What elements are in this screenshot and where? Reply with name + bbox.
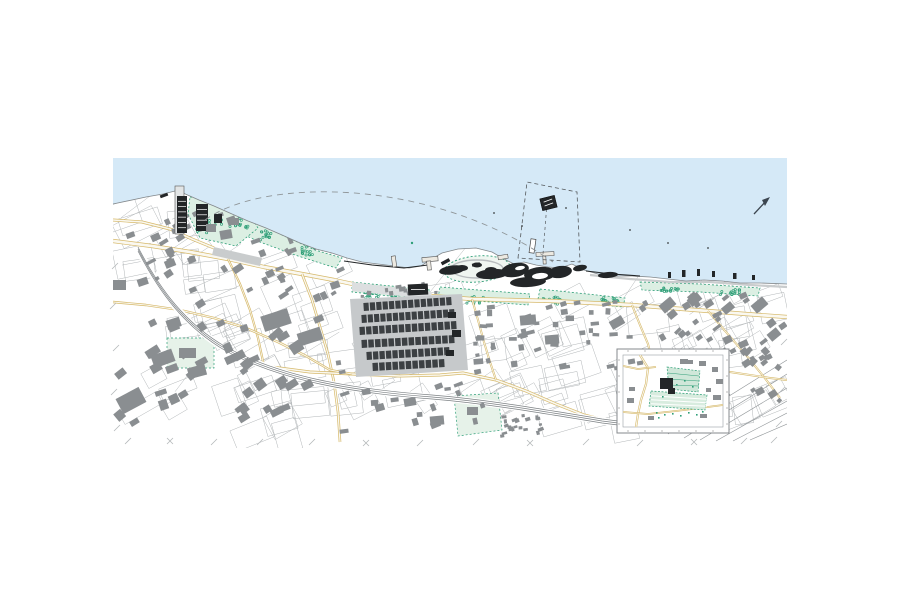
building (706, 336, 713, 342)
old-town-house (427, 298, 433, 306)
old-town-house (392, 350, 398, 358)
bathing-hut (697, 269, 700, 276)
old-town-house (399, 312, 405, 320)
frame-dot (695, 430, 696, 431)
building (592, 333, 599, 337)
building (521, 414, 525, 417)
old-town-house (405, 349, 411, 357)
building-large (609, 315, 626, 330)
inset-green-dot (688, 412, 690, 414)
old-town-house (392, 362, 398, 370)
edge-tick (771, 437, 777, 443)
bathing-hut (712, 271, 715, 277)
building (474, 369, 482, 375)
building (220, 265, 228, 273)
building (626, 335, 632, 339)
old-town-house (421, 299, 427, 307)
building (148, 318, 157, 327)
building-large (260, 308, 292, 332)
edge-tick (113, 345, 119, 351)
old-town-house (401, 300, 407, 308)
frame-dot (678, 430, 679, 431)
old-town-house (425, 323, 431, 331)
building (774, 364, 782, 372)
frame-dot (618, 375, 619, 376)
building (729, 348, 736, 354)
inset-building (699, 361, 706, 366)
building (125, 231, 135, 239)
old-town-house (389, 301, 395, 309)
edge-tick (125, 438, 131, 444)
building (545, 304, 553, 310)
old-town-house (437, 347, 443, 355)
building (336, 360, 342, 365)
old-town-house (424, 311, 430, 319)
town-plan-map (0, 0, 900, 600)
building-large (403, 397, 416, 407)
edge-tick (114, 425, 120, 431)
old-town-house (366, 352, 372, 360)
old-town-house (419, 360, 425, 368)
inset-building (648, 416, 654, 420)
building (509, 337, 517, 341)
building (336, 266, 345, 273)
port-building (206, 224, 216, 232)
frame-dot (661, 350, 662, 351)
building (114, 367, 127, 379)
building-large (113, 280, 126, 290)
old-town-house (379, 351, 385, 359)
buoy-dot (707, 247, 709, 249)
old-town-house (430, 310, 436, 318)
building (692, 318, 699, 325)
old-town-house (425, 348, 431, 356)
building (361, 295, 364, 298)
inset-green-dot (664, 414, 666, 416)
bathing-hut (682, 270, 686, 277)
building-large (545, 334, 560, 344)
old-town-house (443, 309, 449, 317)
edge-tick (741, 438, 747, 444)
old-town-house (386, 313, 392, 321)
building (487, 310, 492, 317)
old-town-house (375, 339, 381, 347)
building (609, 332, 618, 336)
old-town-house (380, 313, 386, 321)
inset-building (627, 398, 634, 403)
frame-dot (618, 407, 619, 408)
frame-dot (712, 430, 713, 431)
old-town-house (446, 297, 452, 305)
old-town-house (399, 361, 405, 369)
inset-building (712, 367, 718, 372)
old-town-house (411, 311, 417, 319)
building (163, 269, 173, 279)
building-large (297, 327, 324, 347)
building (519, 426, 523, 429)
old-town-house (412, 360, 418, 368)
port-building (230, 218, 239, 225)
frame-dot (661, 430, 662, 431)
building (164, 218, 171, 225)
inset-green-dot (676, 384, 678, 386)
inset-green-dot (696, 414, 698, 416)
old-town-house (418, 323, 424, 331)
building (767, 389, 778, 399)
frame-dot (726, 359, 727, 360)
old-town-house (382, 339, 388, 347)
frame-dot (644, 350, 645, 351)
inset-building (629, 387, 635, 391)
old-town-house (399, 324, 405, 332)
old-town-house (437, 310, 443, 318)
building (534, 347, 542, 353)
building (195, 298, 206, 309)
old-town-house (405, 324, 411, 332)
old-town-house (399, 350, 405, 358)
building (159, 238, 169, 246)
old-town-house (412, 349, 418, 357)
old-town-house (379, 362, 385, 370)
building (500, 434, 504, 438)
buoy-dot (565, 207, 567, 209)
building (178, 389, 189, 399)
frame-dot (726, 391, 727, 392)
old-town-house (408, 337, 414, 345)
building-large (520, 314, 537, 325)
buoy-dot (667, 242, 669, 244)
parcel (271, 417, 302, 454)
field-building (467, 407, 478, 415)
old-town-house (414, 299, 420, 307)
building (566, 316, 574, 322)
inset-green-dot (662, 396, 664, 398)
bathing-hut (668, 272, 671, 278)
building (606, 364, 614, 369)
building (519, 332, 528, 339)
old-town-house (402, 338, 408, 346)
building (137, 277, 149, 287)
frame-dot (726, 423, 727, 424)
old-town-house (418, 311, 424, 319)
old-town-house (359, 327, 365, 335)
inset-green-dot (656, 412, 658, 414)
inset-building (688, 360, 693, 364)
building (560, 309, 568, 316)
frame-dot (726, 407, 727, 408)
building (434, 291, 437, 294)
building-large (767, 327, 782, 342)
building (473, 342, 477, 346)
old-town-house (431, 322, 437, 330)
old-town-house (433, 298, 439, 306)
building (778, 322, 787, 331)
building (340, 391, 350, 397)
inset-building (700, 414, 707, 418)
old-town-house (422, 336, 428, 344)
edge-tick (781, 339, 787, 345)
old-town-house (379, 325, 385, 333)
building (486, 323, 493, 327)
inset-project-building (660, 378, 673, 389)
building (385, 288, 389, 293)
building (504, 419, 507, 423)
building (591, 321, 600, 325)
building (658, 333, 666, 342)
old-town-house (382, 301, 388, 309)
old-town-house (376, 302, 382, 310)
old-town-house (374, 314, 380, 322)
building (766, 318, 777, 329)
edge-tick (583, 439, 589, 445)
building (750, 387, 756, 393)
frame-dot (678, 350, 679, 351)
building (523, 428, 528, 431)
green-buoy (411, 242, 413, 244)
building (154, 388, 167, 397)
old-town-house (395, 300, 401, 308)
edge-tick (309, 439, 315, 445)
building-large (751, 296, 769, 313)
detail-inset (617, 349, 729, 433)
building (539, 423, 543, 426)
old-town-house (392, 325, 398, 333)
edge-tick (257, 439, 263, 445)
building (589, 310, 594, 315)
building (535, 415, 538, 419)
building (487, 305, 495, 310)
old-town-house (393, 313, 399, 321)
old-town-house (406, 361, 412, 369)
building (430, 403, 437, 412)
old-town-house (368, 339, 374, 347)
building (331, 290, 337, 296)
parcel (230, 416, 275, 451)
plan-canvas (0, 0, 900, 600)
bush-dot (466, 302, 468, 304)
bathing-hut (752, 275, 755, 280)
building (367, 291, 372, 296)
old-town-house (405, 312, 411, 320)
inset-green-dot (658, 417, 660, 419)
frame-dot (695, 350, 696, 351)
building (313, 314, 324, 323)
old-town-house (386, 362, 392, 370)
building (434, 382, 443, 390)
building (722, 294, 730, 301)
old-town-house (370, 302, 376, 310)
building (579, 330, 585, 335)
old-town-house (361, 315, 367, 323)
edge-tick (110, 303, 116, 309)
building (258, 249, 266, 258)
building (411, 418, 419, 427)
building (475, 353, 480, 357)
old-town-house (432, 359, 438, 367)
frame-dot (618, 423, 619, 424)
parcel (539, 379, 568, 405)
old-town-house (373, 351, 379, 359)
edge-tick (417, 440, 423, 446)
old-town-house (415, 337, 421, 345)
buoy-dot (629, 229, 631, 231)
building (278, 291, 289, 300)
building (513, 425, 517, 429)
parcel (234, 375, 277, 403)
building (474, 310, 481, 316)
old-town-house (395, 338, 401, 346)
old-town-house (408, 300, 414, 308)
inset-building (713, 395, 721, 400)
old-town-house (444, 321, 450, 329)
building (389, 291, 394, 296)
building (501, 415, 506, 418)
old-town-house (429, 336, 435, 344)
building (150, 232, 161, 242)
frame-dot (618, 391, 619, 392)
parcel (196, 270, 241, 303)
edge-tick (111, 389, 117, 395)
inset-building (716, 379, 723, 384)
inset-green-dot (692, 386, 694, 388)
frame-dot (712, 350, 713, 351)
edge-tick (776, 421, 782, 427)
building (473, 358, 483, 364)
building (553, 322, 558, 327)
frame-dot (644, 430, 645, 431)
inset-green-dot (702, 411, 704, 413)
old-town-house (388, 338, 394, 346)
building (444, 387, 451, 391)
edge-tick (211, 439, 217, 445)
old-town-block (446, 350, 454, 356)
building (605, 308, 610, 315)
old-town-house (366, 326, 372, 334)
old-town-house (361, 340, 367, 348)
building (589, 328, 593, 333)
building (586, 340, 590, 345)
inset-green-dot (684, 380, 686, 382)
old-town-house (363, 303, 369, 311)
inset-green-dot (672, 413, 674, 415)
building (759, 338, 768, 346)
frame-dot (726, 375, 727, 376)
inset-building (680, 359, 688, 364)
edge-tick (473, 439, 479, 445)
building (703, 299, 714, 309)
parcel (301, 299, 329, 331)
old-town-house (412, 323, 418, 331)
old-town (350, 294, 468, 377)
buoy-dot (493, 212, 495, 214)
inset-project-building (668, 388, 675, 394)
building (776, 398, 782, 404)
old-town-house (425, 360, 431, 368)
frame-dot (627, 350, 628, 351)
building (390, 397, 398, 402)
building (511, 360, 518, 367)
building (613, 300, 618, 304)
old-town-house (386, 351, 392, 359)
building (525, 417, 531, 422)
old-town-house (385, 325, 391, 333)
old-town-house (451, 321, 457, 329)
frame-dot (627, 430, 628, 431)
old-town-house (442, 335, 448, 343)
building (417, 412, 423, 417)
building (253, 377, 267, 391)
building (486, 358, 491, 364)
frame-dot (618, 359, 619, 360)
old-town-house (372, 363, 378, 371)
old-town-house (438, 322, 444, 330)
bush-dot (377, 295, 379, 297)
old-town-house (435, 336, 441, 344)
building (477, 335, 485, 341)
building-large (430, 415, 445, 425)
building (339, 429, 348, 434)
old-town-house (372, 326, 378, 334)
building (518, 344, 524, 351)
old-town-house (418, 349, 424, 357)
building (246, 287, 253, 293)
old-town-house (368, 314, 374, 322)
building (455, 390, 461, 397)
field-line (750, 424, 787, 440)
inset-green-dot (680, 415, 682, 417)
old-town-block (452, 330, 461, 337)
edge-tick (637, 440, 643, 446)
old-town-house (439, 359, 445, 367)
building (158, 399, 169, 411)
dark-block (214, 214, 222, 223)
building (695, 334, 703, 341)
building (491, 342, 495, 348)
inset-building (706, 388, 711, 392)
old-town-house (431, 348, 437, 356)
buoy-dot (521, 225, 523, 227)
jetty (427, 261, 432, 270)
old-town-house (440, 297, 446, 305)
bathing-hut (733, 273, 737, 279)
building (238, 412, 251, 423)
old-town-block (448, 312, 456, 318)
